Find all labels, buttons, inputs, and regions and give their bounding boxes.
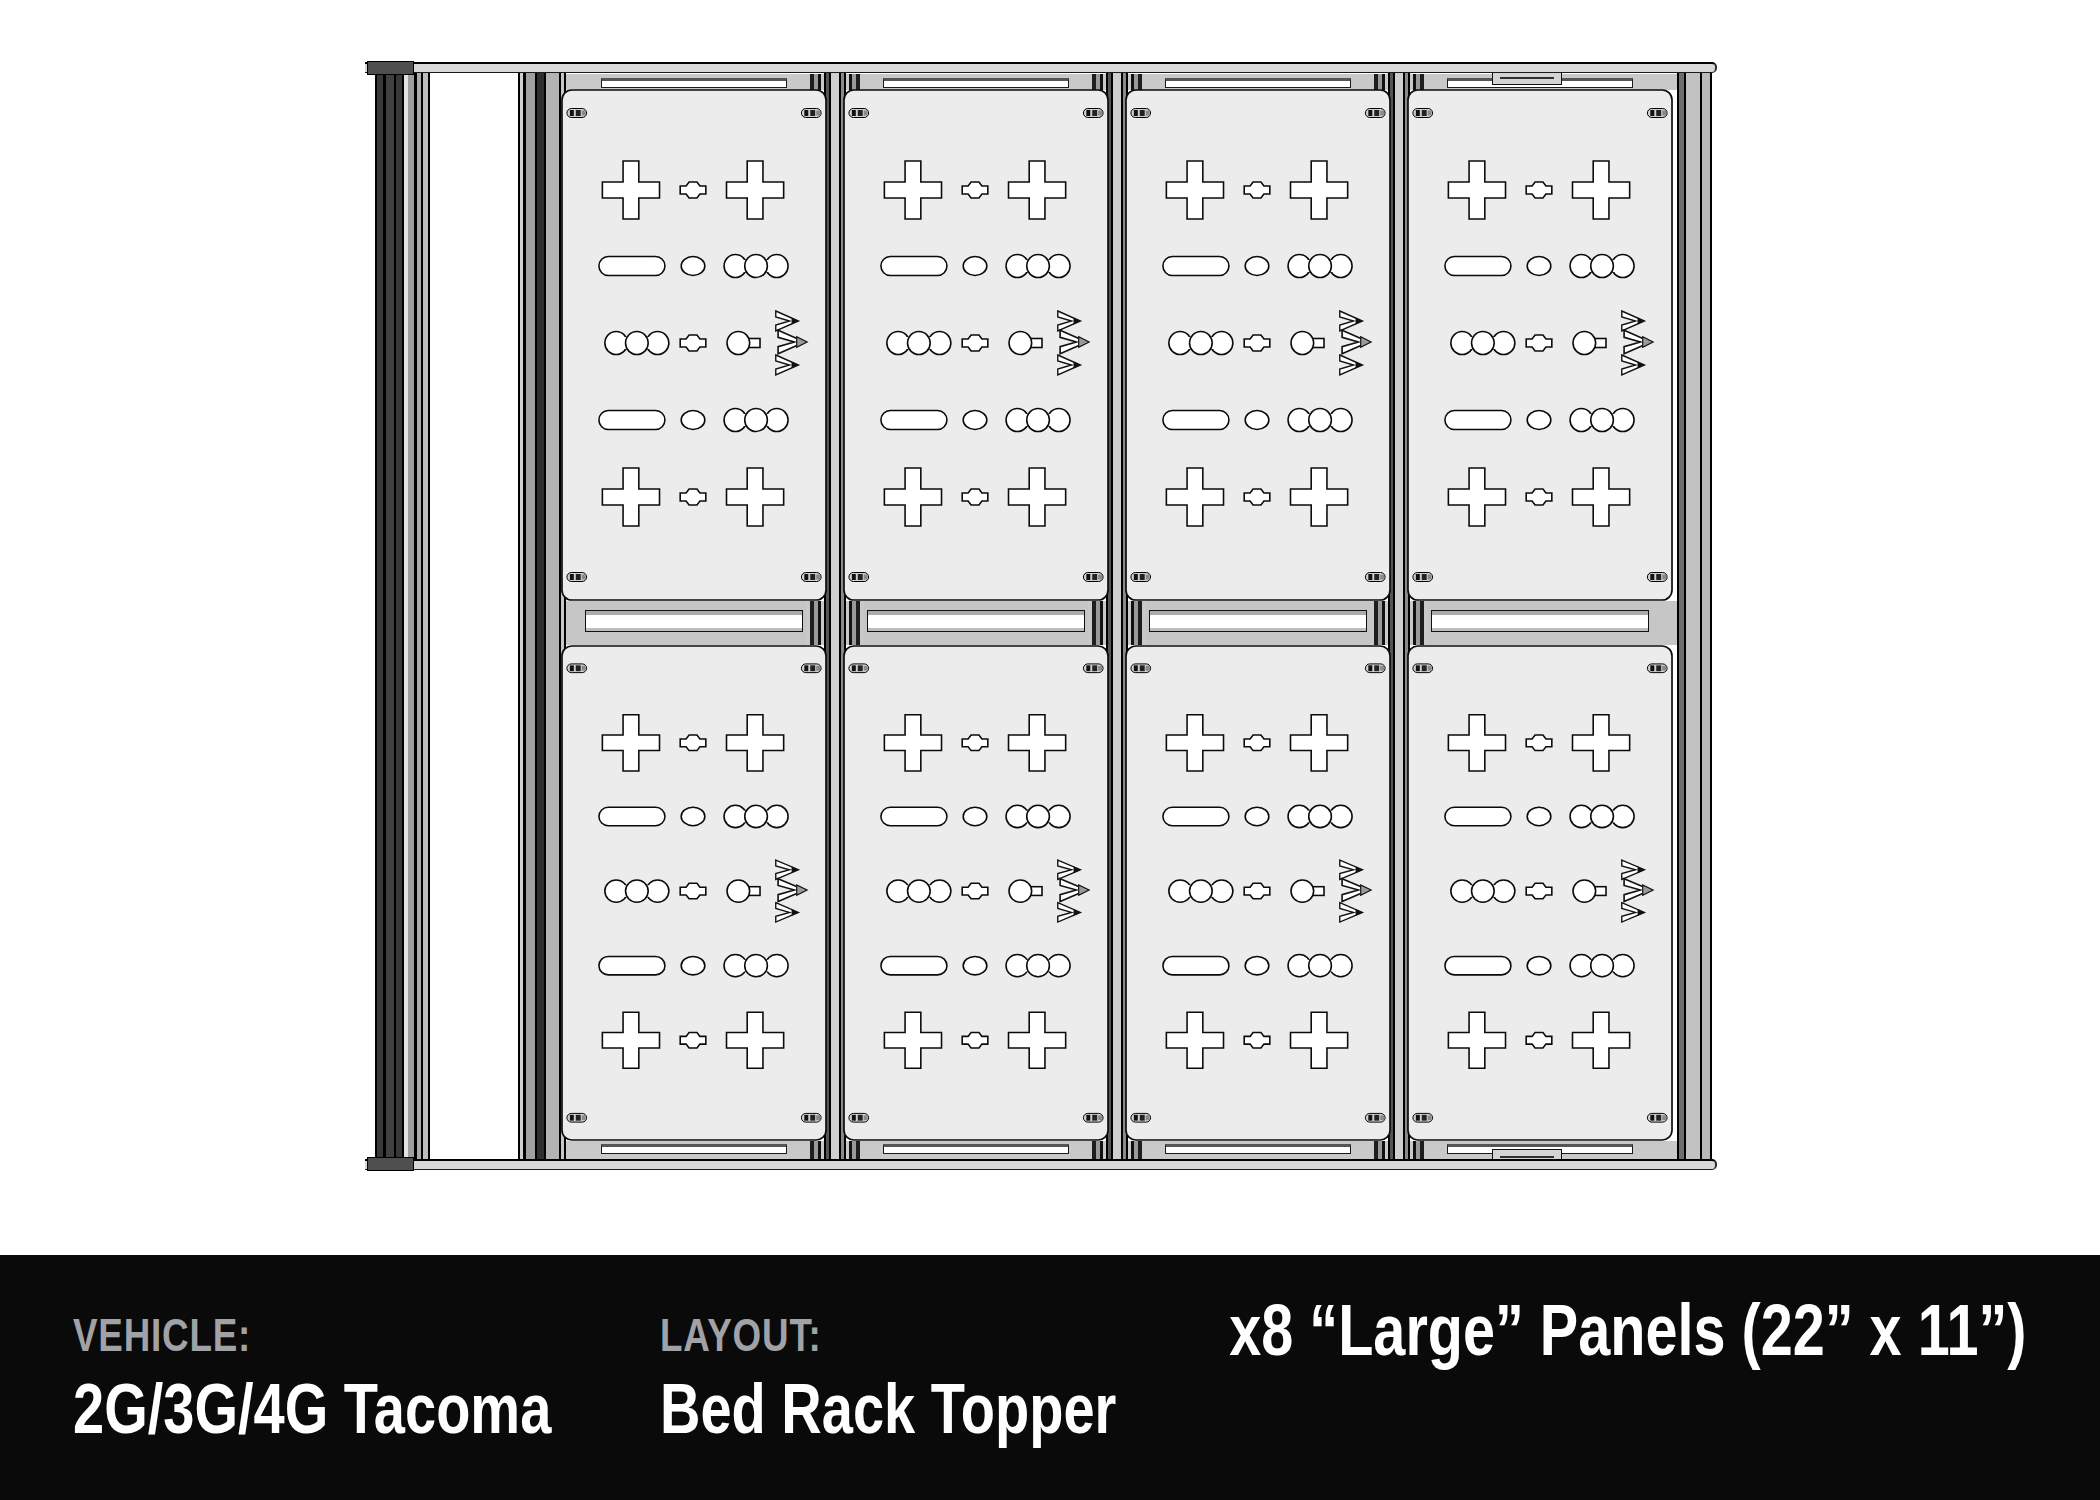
top-rail-bar	[365, 62, 1717, 73]
bottom-crossbar-strip	[1165, 1144, 1351, 1154]
bottom-bar-end-cap	[367, 1157, 414, 1171]
left-inner-rail	[518, 73, 566, 1160]
top-crossbar-strip	[601, 78, 787, 88]
panel-r1c3	[1125, 89, 1391, 601]
screenshot-root: VEHICLE: 2G/3G/4G Tacoma LAYOUT: Bed Rac…	[0, 0, 2100, 1500]
vehicle-value: 2G/3G/4G Tacoma	[73, 1374, 671, 1444]
panels-summary: x8 “Large” Panels (22” x 11”)	[1030, 1294, 2027, 1366]
panel-r1c4	[1407, 89, 1673, 601]
panel-r1c2	[843, 89, 1109, 601]
bed-rack-drawing	[365, 62, 1717, 1174]
panel-r2c4	[1407, 645, 1673, 1141]
mid-crossbar	[1431, 610, 1649, 632]
panel-r2c2	[843, 645, 1109, 1141]
right-outer-rail	[1677, 73, 1712, 1160]
bottom-crossbar-strip	[883, 1144, 1069, 1154]
left-outer-rail	[375, 73, 430, 1160]
mid-crossbar	[1149, 610, 1367, 632]
top-crossbar-strip	[883, 78, 1069, 88]
layout-value: Bed Rack Topper	[660, 1374, 1231, 1444]
panel-r1c1	[561, 89, 827, 601]
top-crossbar-strip	[1165, 78, 1351, 88]
top-bar-end-cap	[367, 61, 414, 75]
layout-label: LAYOUT:	[660, 1312, 862, 1358]
panel-r2c1	[561, 645, 827, 1141]
bottom-rail-bar	[365, 1159, 1717, 1170]
panel-r2c3	[1125, 645, 1391, 1141]
vehicle-label: VEHICLE:	[73, 1312, 296, 1358]
mid-crossbar	[867, 610, 1085, 632]
mid-crossbar	[585, 610, 803, 632]
caption-bar: VEHICLE: 2G/3G/4G Tacoma LAYOUT: Bed Rac…	[0, 1255, 2100, 1500]
bottom-crossbar-strip	[601, 1144, 787, 1154]
